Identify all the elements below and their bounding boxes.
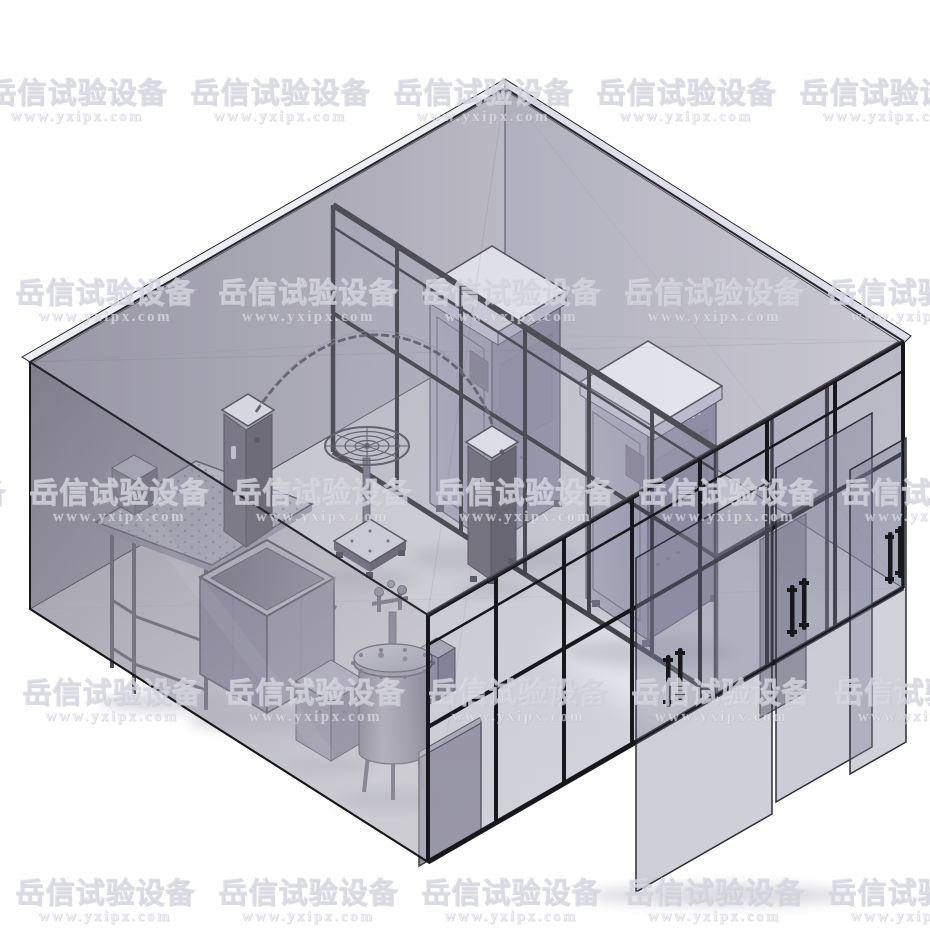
- door-shadow: [590, 884, 850, 906]
- cad-render-canvas: 岳信试验设备www.yxipx.com岳信试验设备www.yxipx.com岳信…: [0, 0, 930, 930]
- test-room-3d-render: [0, 0, 930, 930]
- door-pane-3: [850, 438, 906, 774]
